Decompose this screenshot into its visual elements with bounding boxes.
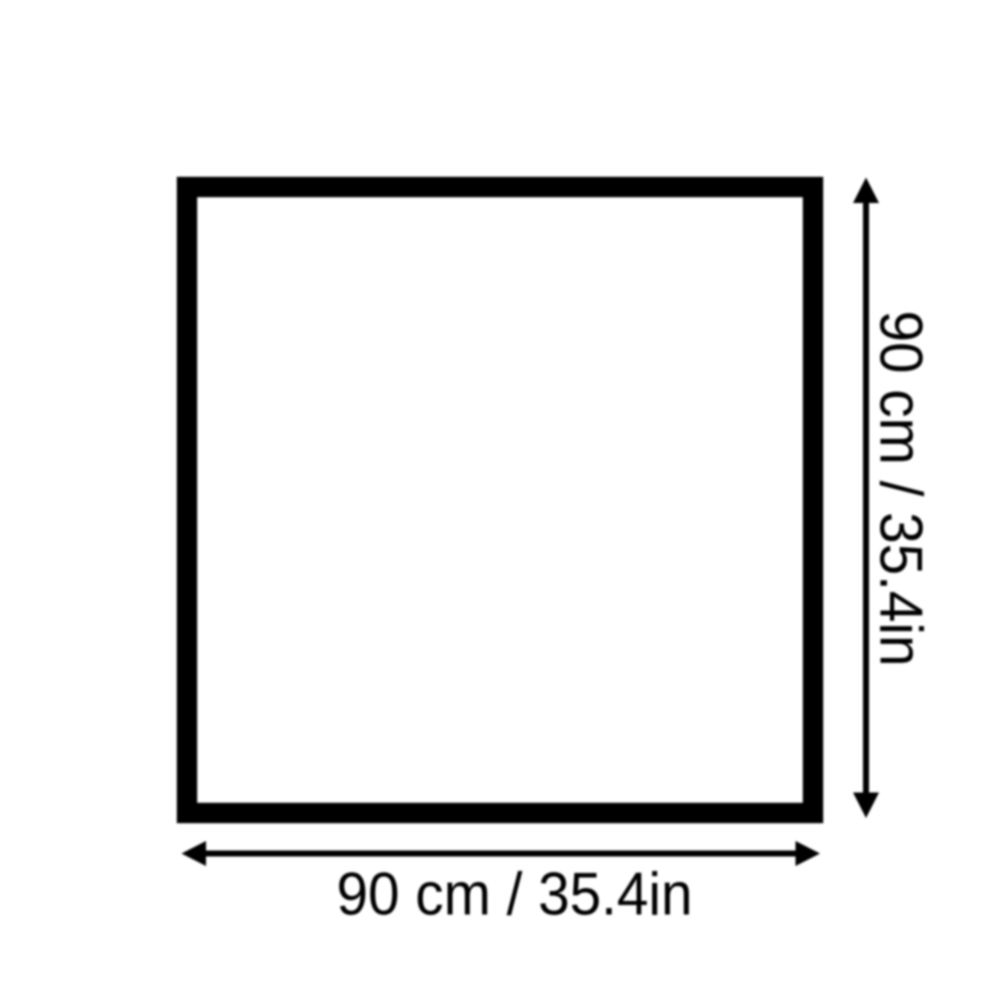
svg-text:90 cm / 35.4in: 90 cm / 35.4in: [868, 311, 935, 667]
svg-text:90 cm / 35.4in: 90 cm / 35.4in: [337, 861, 693, 928]
